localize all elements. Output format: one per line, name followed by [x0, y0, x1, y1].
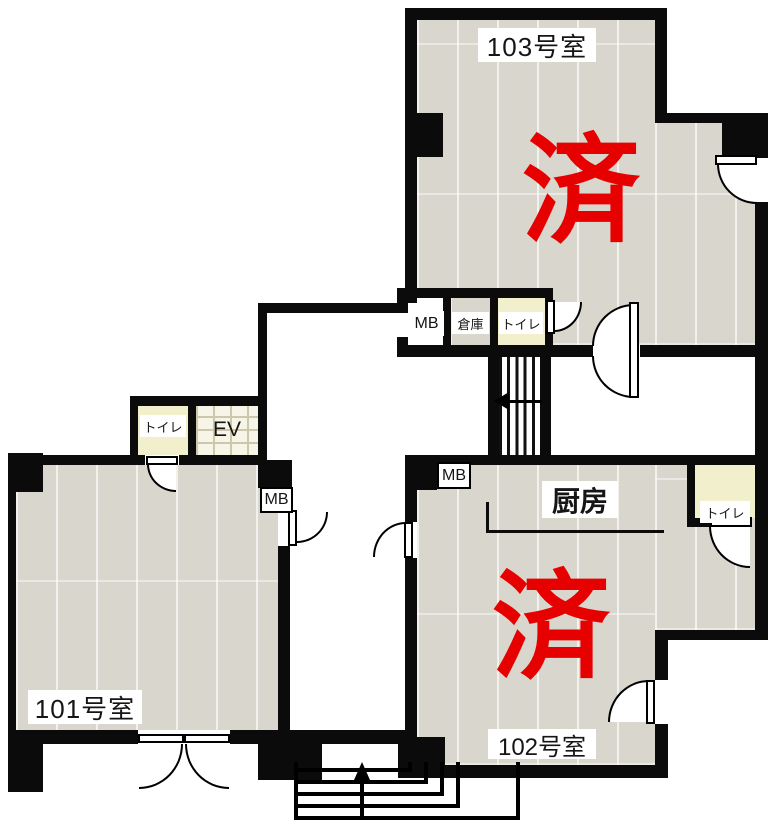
kitchen-counter-horiz [486, 530, 664, 533]
wall-ev-top [130, 396, 267, 406]
floor-plan: 103号室 済 101号室 102号室 済 厨房 MB 倉庫 トイレ トイレ E… [0, 0, 768, 833]
wall-corridor-left-vert [258, 303, 267, 463]
room-102-status: 済 [492, 568, 610, 686]
room-103-status: 済 [522, 132, 640, 250]
mb-102-label-text: MB [442, 467, 466, 485]
door-leaf-101-entry-left [138, 734, 184, 743]
toilet-102-label: トイレ [700, 501, 750, 523]
mb-103-label: MB [409, 311, 444, 336]
kitchen-label: 厨房 [542, 481, 618, 518]
stairs-inner-arrow-head [494, 392, 509, 410]
elevator-label: EV [200, 417, 254, 443]
wall-101-bottom-a [8, 730, 138, 744]
door-leaf-toilet-103 [546, 300, 555, 334]
door-swing-102-entry [373, 522, 406, 557]
room-101-label-text: 101号室 [35, 689, 135, 726]
stairs-entrance [288, 756, 528, 830]
wall-toilet-ev-part [188, 396, 196, 463]
toilet-common-label-text: トイレ [143, 417, 182, 436]
wall-101-right [278, 546, 290, 734]
room-102-label: 102号室 [488, 729, 596, 759]
pilaster-101-topleft [8, 453, 43, 492]
door-swing-103-entry-down [592, 356, 634, 398]
wall-corridor-top-b [640, 345, 768, 357]
door-leaf-101-entry-right [184, 734, 230, 743]
stairs-inner-arrow-shaft [508, 400, 542, 403]
room-103-label-text: 103号室 [487, 27, 587, 64]
wall-ev-left [130, 396, 138, 463]
door-swing-101-entry-right [185, 744, 229, 789]
storage-label: 倉庫 [452, 312, 489, 334]
door-leaf-103-entry [629, 302, 639, 398]
toilet-103-label: トイレ [499, 312, 543, 334]
storage-label-text: 倉庫 [457, 314, 483, 333]
pilaster-103-left [405, 113, 443, 157]
mb-101-label-text: MB [265, 491, 289, 509]
wall-right-main [755, 202, 768, 632]
room-103-label: 103号室 [478, 28, 596, 62]
toilet-102-label-text: トイレ [705, 503, 744, 522]
pilaster-103-topright [722, 113, 768, 158]
wall-103-topright-vert [655, 8, 667, 123]
wall-corridor-left-top [258, 303, 408, 313]
wall-102-notch [655, 630, 768, 640]
stairs-inner-right-wall [540, 350, 551, 458]
room-102-label-text: 102号室 [498, 727, 586, 762]
kitchen-counter-vert [486, 502, 489, 533]
mb-101-label: MB [260, 487, 293, 513]
door-swing-101-right [297, 512, 328, 543]
wall-toilet102-part [687, 455, 695, 518]
block-101-mb [258, 460, 292, 488]
room-101-label: 101号室 [28, 690, 142, 724]
wall-102-right-a [655, 630, 668, 680]
elevator-label-text: EV [213, 418, 241, 442]
mb-103-label-text: MB [415, 315, 439, 333]
toilet-103-label-text: トイレ [501, 314, 540, 333]
door-leaf-102-right [646, 680, 655, 724]
mb-access-gap [396, 311, 410, 337]
block-102-mb [405, 455, 437, 490]
door-gap-102-right [655, 680, 668, 724]
wall-103-top [405, 8, 665, 20]
toilet-common-label: トイレ [140, 415, 186, 437]
kitchen-label-text: 厨房 [552, 480, 608, 520]
mb-102-label: MB [437, 462, 471, 489]
door-leaf-101-right [288, 510, 297, 546]
wall-101-top-b [179, 455, 258, 465]
door-swing-101-entry-left [139, 744, 183, 789]
door-leaf-103-right [715, 155, 757, 165]
door-leaf-toilet-common [146, 456, 178, 465]
wall-service-row-top [405, 288, 553, 298]
door-leaf-102-entry [404, 522, 413, 558]
